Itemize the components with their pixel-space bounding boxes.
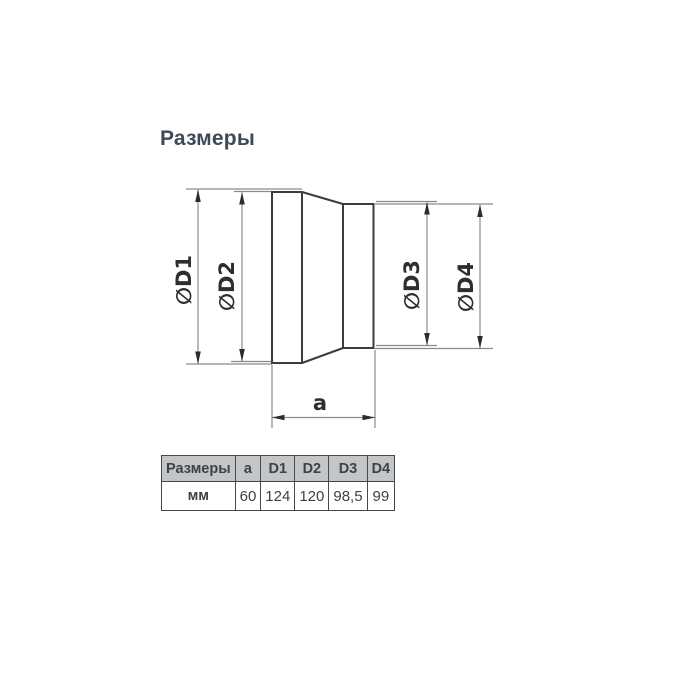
- label-d4: ∅D4: [454, 262, 478, 312]
- dimension-labels: ∅D1 ∅D2 ∅D3 ∅D4 a: [172, 255, 478, 415]
- header-cell-d4: D4: [367, 456, 395, 482]
- taper-top: [302, 192, 343, 204]
- d4-arrow-up: [477, 205, 483, 218]
- a-arrow-left: [272, 415, 285, 421]
- label-d3: ∅D3: [400, 260, 424, 310]
- value-cell-a: 60: [235, 482, 261, 511]
- d2-arrow-down: [239, 349, 245, 362]
- table-value-row: мм 60 124 120 98,5 99: [162, 482, 395, 511]
- d1-arrow-down: [195, 352, 201, 365]
- d4-arrow-down: [477, 336, 483, 349]
- table-header-row: Размеры a D1 D2 D3 D4: [162, 456, 395, 482]
- dimensions-table: Размеры a D1 D2 D3 D4 мм 60 124 120 98,5…: [161, 455, 395, 511]
- value-cell-d2: 120: [295, 482, 329, 511]
- value-cell-d3: 98,5: [329, 482, 367, 511]
- dimension-diagram: ∅D1 ∅D2 ∅D3 ∅D4 a: [0, 0, 700, 700]
- value-cell-d4: 99: [367, 482, 395, 511]
- small-cylinder: [343, 204, 374, 348]
- label-d2: ∅D2: [215, 261, 239, 311]
- a-arrow-right: [363, 415, 376, 421]
- header-cell-d3: D3: [329, 456, 367, 482]
- d2-arrow-up: [239, 192, 245, 205]
- header-cell-d1: D1: [261, 456, 295, 482]
- header-cell-name: Размеры: [162, 456, 236, 482]
- header-cell-a: a: [235, 456, 261, 482]
- label-d1: ∅D1: [172, 255, 196, 305]
- value-cell-d1: 124: [261, 482, 295, 511]
- header-cell-d2: D2: [295, 456, 329, 482]
- d3-arrow-down: [424, 333, 430, 346]
- label-a: a: [313, 391, 327, 415]
- unit-cell: мм: [162, 482, 236, 511]
- taper-bottom: [302, 348, 343, 363]
- product-dimensions-panel: Размеры: [0, 0, 700, 700]
- part-outline: [272, 192, 374, 363]
- large-cylinder: [272, 192, 302, 363]
- d1-arrow-up: [195, 190, 201, 203]
